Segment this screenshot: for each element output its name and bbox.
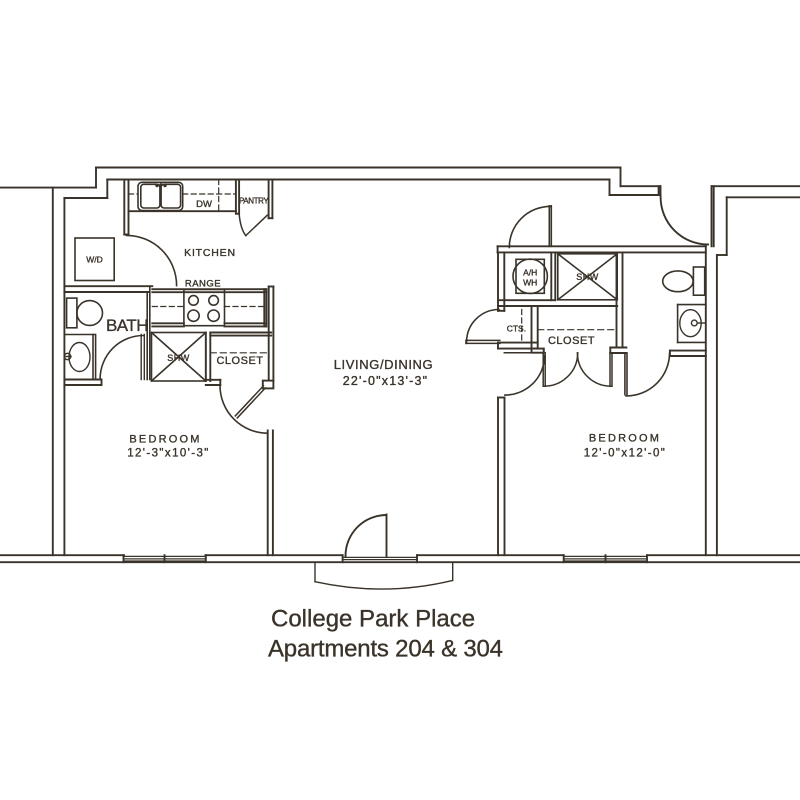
svg-text:LIVING/DINING: LIVING/DINING [334,357,434,372]
svg-text:Apartments 204 & 304: Apartments 204 & 304 [268,636,503,663]
svg-text:BEDROOM: BEDROOM [589,433,661,445]
svg-text:A/H: A/H [523,267,537,277]
svg-text:KITCHEN: KITCHEN [184,247,236,259]
svg-text:SHW: SHW [167,353,190,363]
svg-text:CLOSET: CLOSET [548,335,595,347]
svg-text:CLOSET: CLOSET [216,355,263,367]
svg-text:DW: DW [196,199,212,210]
svg-text:12'-3"x10'-3": 12'-3"x10'-3" [127,447,210,459]
svg-text:BATH: BATH [106,316,148,335]
svg-text:RANGE: RANGE [185,278,221,289]
svg-text:BEDROOM: BEDROOM [129,433,201,445]
svg-text:College Park Place: College Park Place [271,606,475,633]
svg-text:W/D: W/D [86,255,103,265]
svg-text:WH: WH [523,277,537,287]
svg-text:CTS.: CTS. [507,324,526,334]
svg-text:PANTRY: PANTRY [239,196,269,205]
svg-text:12'-0"x12'-0": 12'-0"x12'-0" [584,447,667,459]
svg-text:SHW: SHW [576,272,599,282]
svg-text:22'-0"x13'-3": 22'-0"x13'-3" [343,374,429,388]
